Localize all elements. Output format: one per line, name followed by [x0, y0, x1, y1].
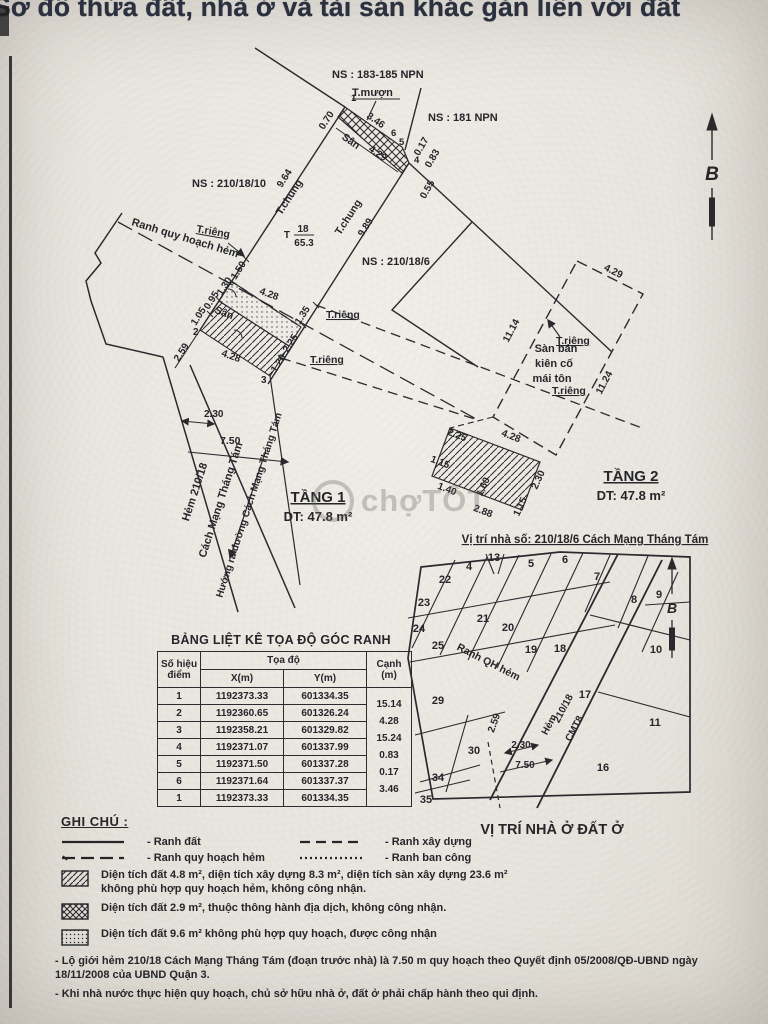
scan-corner-mark	[0, 6, 9, 36]
dim-2-59: 2.59	[172, 341, 192, 364]
dashdot-line-sample	[61, 853, 147, 863]
dim-1-35: 1.35	[293, 304, 313, 327]
plot-8: 8	[631, 594, 637, 606]
cell-x: 1192373.33	[201, 790, 284, 807]
plot-9: 9	[656, 589, 662, 601]
cell-y: 601337.28	[284, 756, 367, 773]
cell-y: 601337.37	[284, 773, 367, 790]
legend-note-hatch: Diện tích đất 4.8 m², diện tích xây dựng…	[101, 869, 533, 897]
cell-y: 601326.24	[284, 705, 367, 722]
col-point-header: Số hiệu điểm	[158, 652, 201, 688]
location-map-labels: Ranh QH hẻm 2.59 2.30 7.50 Hẻm 210/18 CM…	[455, 641, 625, 838]
plot-18: 18	[554, 643, 566, 655]
plot-7: 7	[594, 571, 600, 583]
hem-210-18-label: Hẻm 210/18	[180, 461, 210, 522]
san-ban-line1: Sàn bán	[535, 343, 578, 355]
legend-label-ranh-xay-dung: - Ranh xây dựng	[385, 836, 727, 848]
col-y-header: Y(m)	[284, 670, 367, 688]
plot-6: 6	[562, 554, 568, 566]
table-row: 1 1192373.33 601334.35 15.14 4.28 15.24 …	[158, 688, 412, 705]
plot-30: 30	[468, 745, 480, 757]
parcel-area: 65.3	[294, 238, 314, 249]
edge-value: 15.14	[367, 699, 411, 710]
t-rieng-label-2: T.riêng	[326, 309, 360, 321]
map-dim-7-50: 7.50	[515, 760, 535, 771]
edge-value: 3.46	[367, 784, 411, 795]
ns-181-label: NS : 181 NPN	[428, 112, 498, 124]
map-dim-2-30: 2.30	[511, 740, 531, 751]
plot-19: 19	[525, 644, 537, 656]
edge-value: 0.83	[367, 750, 411, 761]
map-top-caption: Vị trí nhà số: 210/18/6 Cách Mạng Tháng …	[462, 534, 709, 546]
edge-value: 4.28	[367, 716, 411, 727]
dim-0-83: 0.83	[423, 147, 442, 170]
col-edge-header: Cạnh (m)	[367, 652, 412, 688]
plot-5: 5	[528, 558, 534, 570]
tang1-area: DT: 47.8 m²	[284, 509, 353, 524]
legend-label-ranh-quy-hoach-hem: - Ranh quy hoạch hẻm	[147, 852, 299, 864]
edge-value: 0.17	[367, 767, 411, 778]
cell-x: 1192371.07	[201, 739, 284, 756]
col-edge-line2: (m)	[381, 670, 397, 681]
tang2-area: DT: 47.8 m²	[597, 488, 666, 503]
cell-x: 1192371.64	[201, 773, 284, 790]
ns-210-18-6-label: NS : 210/18/6	[362, 256, 430, 268]
ns-210-18-10-label: NS : 210/18/10	[192, 178, 266, 190]
cell-point: 5	[158, 756, 201, 773]
plot-29: 29	[432, 695, 444, 707]
scanned-land-survey-document: Sơ đồ thửa đất, nhà ở và tài sản khác gắ…	[0, 0, 768, 1024]
plot-22: 22	[439, 574, 451, 586]
col-coord-header: Tọa độ	[201, 652, 367, 670]
col-point-line2: điểm	[167, 670, 190, 681]
cell-point: 3	[158, 722, 201, 739]
legend-label-ranh-ban-cong: - Ranh ban công	[385, 852, 727, 864]
cell-point: 2	[158, 705, 201, 722]
cell-x: 1192360.65	[201, 705, 284, 722]
point-5: 5	[399, 137, 405, 148]
plot-10: 10	[650, 644, 662, 656]
dim-2-88: 2.88	[472, 503, 495, 520]
col-x-header: X(m)	[201, 670, 284, 688]
map-cmt8-label: CMT8	[564, 714, 587, 744]
point-1: 1	[351, 93, 357, 104]
plot-17: 17	[579, 689, 591, 701]
plot-11: 11	[649, 717, 661, 729]
point-6: 6	[391, 128, 396, 139]
plot-20: 20	[502, 622, 514, 634]
solid-line-sample	[61, 838, 147, 846]
plot-35: 35	[420, 794, 432, 806]
legend-section: GHI CHÚ : - Ranh đất - Ranh xây dựng - R…	[55, 814, 727, 1001]
plot-21: 21	[477, 613, 489, 625]
t-muon-label: T.mượn	[352, 87, 393, 99]
alley-boundaries	[86, 213, 300, 612]
col-edge-line1: Cạnh	[377, 659, 402, 670]
plot-34: 34	[432, 772, 445, 784]
plot-13: 13	[488, 552, 500, 564]
cell-x: 1192371.50	[201, 756, 284, 773]
legend-note-crosshatch: Diện tích đất 2.9 m², thuộc thông hành đ…	[101, 902, 661, 916]
dot-fill-swatch	[61, 929, 89, 949]
t-rieng-label-3: T.riêng	[310, 354, 344, 366]
col-point-line1: Số hiệu	[161, 659, 197, 670]
plot-4: 4	[466, 561, 473, 573]
location-map-lines	[408, 552, 690, 808]
dim-11-24: 11.24	[594, 369, 615, 396]
san-ban-line2: kiên cố	[535, 358, 573, 370]
dashed-line-sample	[299, 838, 385, 846]
cell-point: 1	[158, 790, 201, 807]
plot-24: 24	[413, 623, 426, 635]
point-3: 3	[261, 375, 267, 386]
location-map-plot-numbers: 4 5 6 7 8 9 10 11 13 16 17 18 19 20 21 2…	[413, 552, 662, 806]
dim-2-30-alley: 2.30	[204, 409, 224, 420]
plot-16: 16	[597, 762, 609, 774]
edge-values-cell: 15.14 4.28 15.24 0.83 0.17 3.46	[367, 688, 412, 807]
legend-label-ranh-dat: - Ranh đất	[147, 836, 299, 848]
parcel-t: T	[284, 230, 290, 241]
cross-hatch-swatch	[61, 903, 89, 923]
t-rieng-label-5: T.riêng	[552, 385, 586, 397]
dim-0-55: 0.55	[418, 178, 437, 201]
diag-hatch-swatch	[61, 870, 89, 890]
cell-x: 1192373.33	[201, 688, 284, 705]
map-north-label: B	[667, 600, 677, 616]
cell-point: 4	[158, 739, 201, 756]
point-2: 2	[193, 327, 199, 338]
dotted-line-sample	[299, 854, 385, 862]
plot-23: 23	[418, 597, 430, 609]
cell-y: 601329.82	[284, 722, 367, 739]
dim-1-50: 1.50	[229, 259, 249, 282]
dim-11-14: 11.14	[501, 317, 522, 344]
scan-edge-line	[9, 56, 12, 1008]
note-lo-gioi: - Lộ giới hẻm 210/18 Cách Mạng Tháng Tám…	[55, 954, 715, 983]
legend-title: GHI CHÚ :	[61, 814, 727, 829]
edge-value: 15.24	[367, 733, 411, 744]
map-dim-2-59: 2.59	[486, 712, 503, 734]
san-ban-line3: mái tôn	[532, 373, 571, 385]
cell-point: 1	[158, 688, 201, 705]
cell-point: 6	[158, 773, 201, 790]
cell-y: 601334.35	[284, 790, 367, 807]
legend-notes: - Lộ giới hẻm 210/18 Cách Mạng Tháng Tám…	[55, 954, 727, 1002]
tang1-title: TẦNG 1	[290, 489, 345, 506]
tang2-title: TẦNG 2	[603, 468, 658, 485]
cell-y: 601334.35	[284, 688, 367, 705]
legend-note-dotted: Diện tích đất 9.6 m² không phù hợp quy h…	[101, 928, 661, 942]
ns-183-185-label: NS : 183-185 NPN	[332, 69, 424, 81]
coordinate-table: Số hiệu điểm Tọa độ Cạnh (m) X(m) Y(m) 1…	[157, 651, 412, 807]
cell-y: 601337.99	[284, 739, 367, 756]
north-label: B	[705, 164, 719, 185]
dim-4-28-c: 4.28	[500, 428, 523, 445]
note-quy-hoach: - Khi nhà nước thực hiện quy hoạch, chủ …	[55, 987, 715, 1001]
plot-25: 25	[432, 640, 444, 652]
dim-0-70: 0.70	[317, 109, 337, 132]
cell-x: 1192358.21	[201, 722, 284, 739]
parcel-number: 18	[297, 224, 309, 235]
coordinate-table-title: BẢNG LIỆT KÊ TỌA ĐỘ GÓC RANH	[150, 633, 412, 647]
